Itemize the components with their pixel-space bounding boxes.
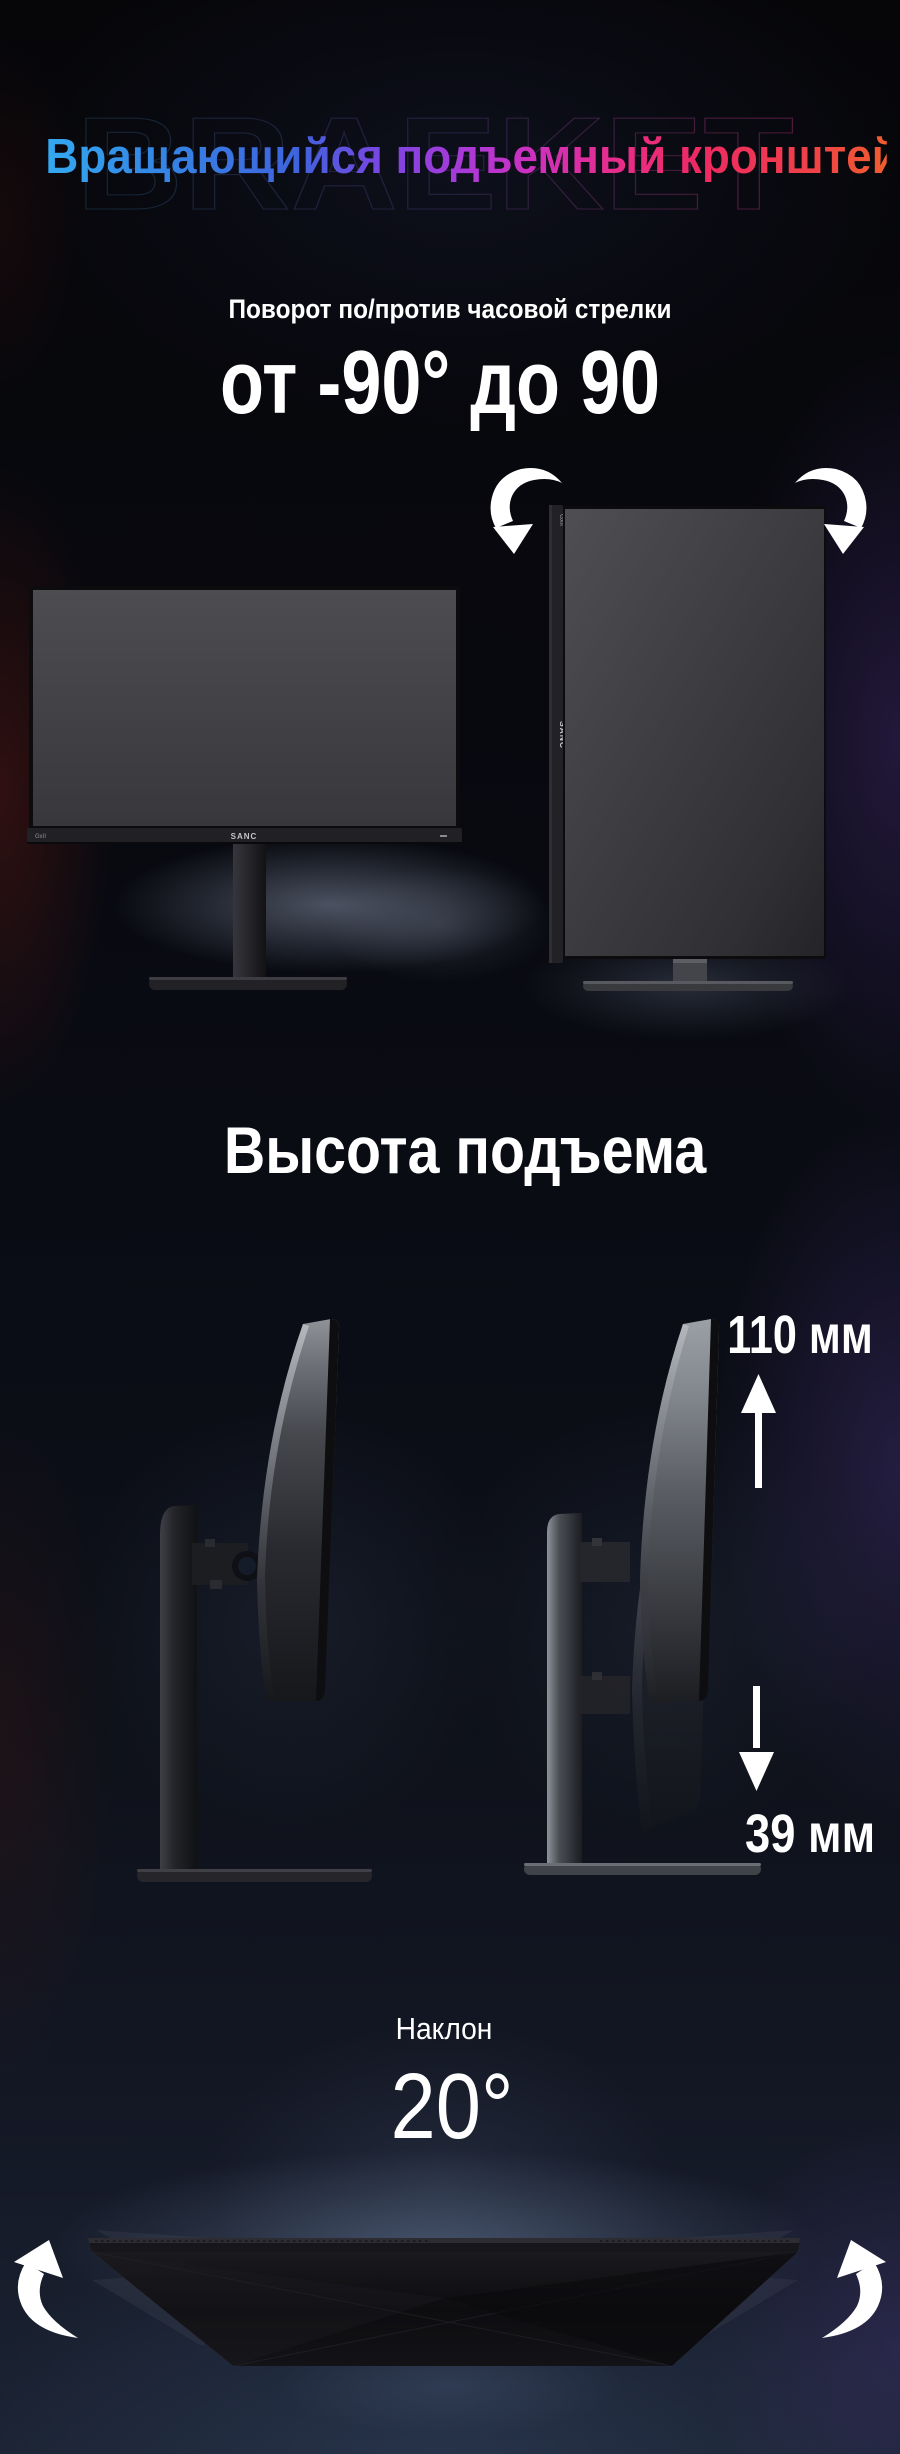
- svg-text:GxII: GxII: [35, 834, 46, 840]
- svg-text:SANC: SANC: [231, 832, 258, 841]
